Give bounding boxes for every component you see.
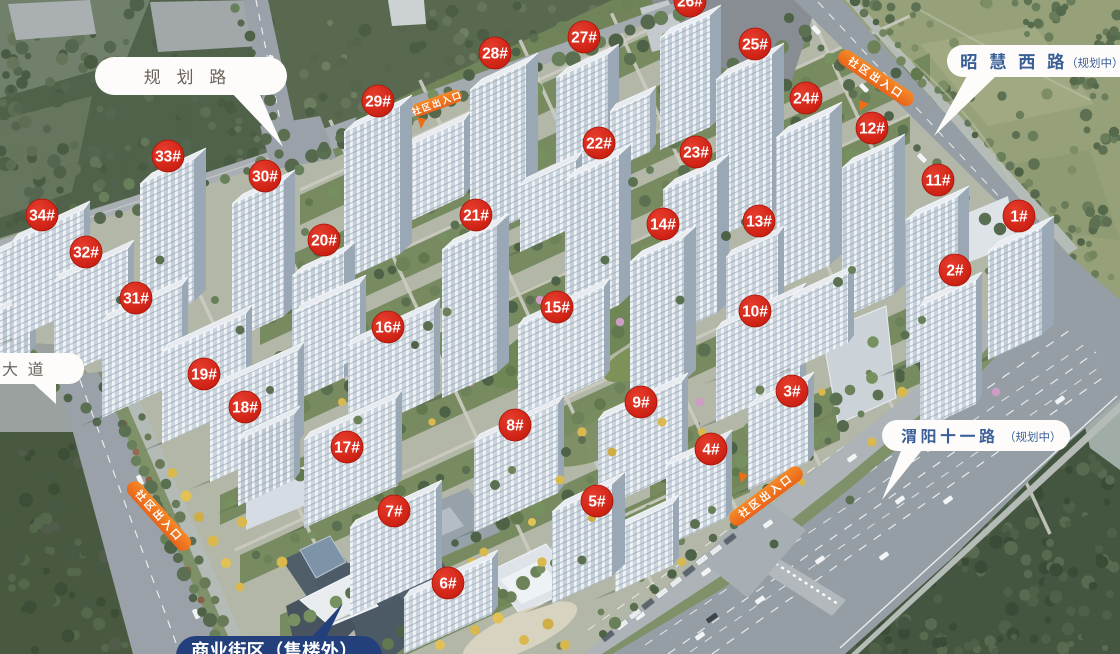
svg-text:28#: 28# <box>482 46 508 63</box>
svg-text:22#: 22# <box>586 136 612 153</box>
svg-text:33#: 33# <box>155 149 181 166</box>
svg-text:2#: 2# <box>946 263 964 280</box>
svg-text:7#: 7# <box>385 504 403 521</box>
svg-text:5#: 5# <box>588 494 606 511</box>
svg-text:9#: 9# <box>632 395 650 412</box>
svg-text:14#: 14# <box>650 217 676 234</box>
svg-text:34#: 34# <box>29 208 55 225</box>
svg-text:16#: 16# <box>375 320 401 337</box>
svg-text:4#: 4# <box>702 442 720 459</box>
svg-text:1#: 1# <box>1010 209 1028 226</box>
svg-text:30#: 30# <box>252 169 278 186</box>
svg-text:11#: 11# <box>925 173 950 190</box>
svg-text:31#: 31# <box>123 291 149 308</box>
svg-text:12#: 12# <box>859 121 885 138</box>
svg-text:6#: 6# <box>439 576 457 593</box>
svg-text:26#: 26# <box>677 0 703 11</box>
svg-text:23#: 23# <box>683 145 709 162</box>
svg-text:24#: 24# <box>793 91 819 108</box>
svg-text:8#: 8# <box>506 418 524 435</box>
svg-text:10#: 10# <box>742 304 768 321</box>
svg-text:19#: 19# <box>191 367 217 384</box>
svg-text:21#: 21# <box>463 208 489 225</box>
svg-text:29#: 29# <box>365 94 391 111</box>
svg-text:27#: 27# <box>571 30 597 47</box>
svg-text:20#: 20# <box>311 233 337 250</box>
svg-text:25#: 25# <box>742 37 768 54</box>
svg-text:32#: 32# <box>73 245 99 262</box>
svg-text:18#: 18# <box>232 400 258 417</box>
svg-text:15#: 15# <box>544 300 570 317</box>
svg-text:17#: 17# <box>334 440 360 457</box>
svg-text:13#: 13# <box>746 214 772 231</box>
svg-text:3#: 3# <box>783 384 801 401</box>
